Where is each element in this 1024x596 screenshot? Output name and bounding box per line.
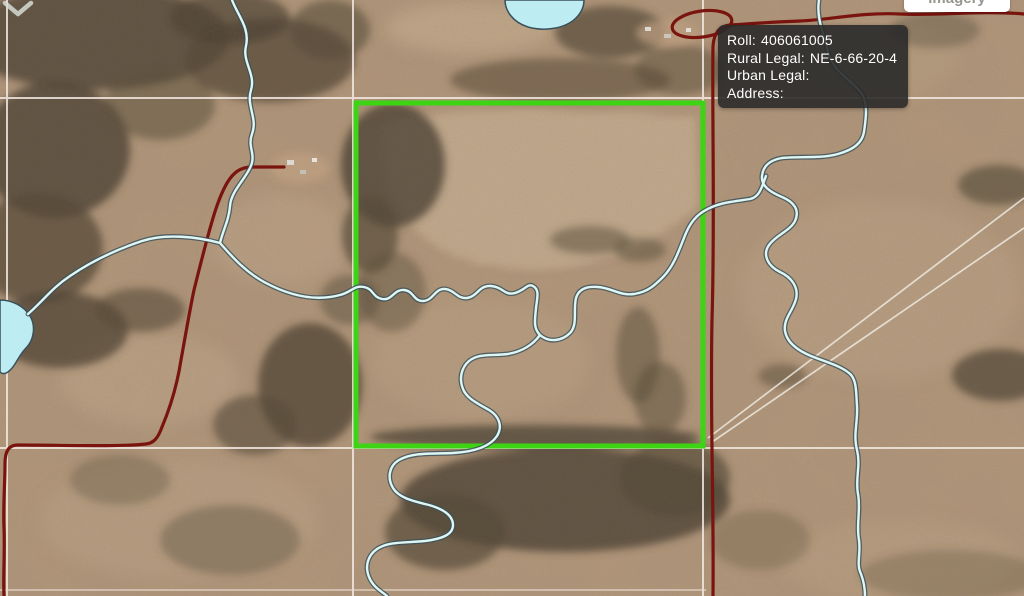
basemap-label-text: Imagery [928,0,986,7]
parcel-info-tooltip: Roll:406061005 Rural Legal:NE-6-66-20-4 … [718,25,908,108]
map-canvas[interactable]: Roll:406061005 Rural Legal:NE-6-66-20-4 … [0,0,1024,596]
tooltip-roll: Roll:406061005 [727,32,899,50]
tooltip-urban-legal: Urban Legal: [727,67,899,85]
chevron-down-icon[interactable] [0,0,36,18]
tooltip-address: Address: [727,85,899,103]
tooltip-rural-legal: Rural Legal:NE-6-66-20-4 [727,50,899,68]
basemap-imagery-button[interactable]: Imagery [904,0,1010,12]
